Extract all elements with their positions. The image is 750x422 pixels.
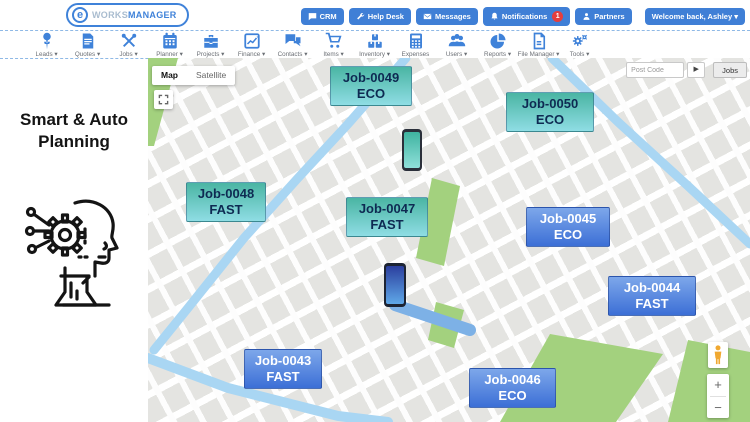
phone-marker-blue[interactable] bbox=[383, 262, 407, 308]
nav-label-users: Users ▾ bbox=[446, 51, 467, 58]
nav-item-jobs[interactable]: Jobs ▾ bbox=[108, 32, 149, 58]
job-marker-0046[interactable]: Job-0046 ECO bbox=[469, 368, 556, 408]
app-window: e WORKSMANAGER CRM Help Desk Messages No… bbox=[0, 0, 750, 422]
calculator-icon bbox=[407, 32, 425, 50]
nav-label-projects: Projects ▾ bbox=[197, 51, 225, 58]
jobs-toggle-button[interactable]: Jobs bbox=[713, 62, 747, 78]
messages-button[interactable]: Messages bbox=[416, 8, 478, 25]
welcome-user-menu[interactable]: Welcome back, Ashley ▾ bbox=[645, 8, 745, 25]
job-marker-0043[interactable]: Job-0043 FAST bbox=[244, 349, 322, 389]
job-tag: FAST bbox=[615, 296, 689, 312]
smart-planning-panel: Smart & Auto Planning bbox=[0, 59, 148, 422]
job-id: Job-0047 bbox=[353, 201, 421, 217]
job-tag: ECO bbox=[476, 388, 549, 404]
logo-e-icon: e bbox=[72, 7, 88, 23]
tools-cross-icon bbox=[120, 32, 138, 50]
users-icon bbox=[448, 32, 466, 50]
brand-first: WORKS bbox=[92, 10, 128, 20]
partners-button[interactable]: Partners bbox=[575, 8, 631, 25]
nav-label-contacts: Contacts ▾ bbox=[278, 51, 308, 58]
notifications-button[interactable]: Notifications 1 bbox=[483, 7, 570, 26]
panel-title-line1: Smart & Auto bbox=[0, 109, 148, 131]
nav-label-tools: Tools ▾ bbox=[570, 51, 590, 58]
map-features-layer bbox=[148, 58, 750, 422]
job-id: Job-0046 bbox=[476, 372, 549, 388]
partners-label: Partners bbox=[594, 12, 624, 21]
calendar-icon bbox=[161, 32, 179, 50]
postcode-input[interactable] bbox=[626, 62, 684, 78]
job-id: Job-0050 bbox=[513, 96, 587, 112]
brand-second: MANAGER bbox=[128, 10, 177, 20]
nav-item-finance[interactable]: Finance ▾ bbox=[231, 32, 272, 58]
file-icon bbox=[530, 32, 548, 50]
nav-label-inventory: Inventory ▾ bbox=[359, 51, 390, 58]
job-marker-0045[interactable]: Job-0045 ECO bbox=[526, 207, 610, 247]
phone-marker-teal[interactable] bbox=[401, 128, 423, 172]
nav-item-items[interactable]: Items ▾ bbox=[313, 32, 354, 58]
crm-button[interactable]: CRM bbox=[301, 8, 344, 25]
nav-item-leads[interactable]: Leads ▾ bbox=[26, 32, 67, 58]
job-id: Job-0045 bbox=[533, 211, 603, 227]
job-id: Job-0043 bbox=[251, 353, 315, 369]
nav-item-quotes[interactable]: Quotes ▾ bbox=[67, 32, 108, 58]
nav-item-file-manager[interactable]: File Manager ▾ bbox=[518, 32, 559, 58]
nav-item-planner[interactable]: Planner ▾ bbox=[149, 32, 190, 58]
messages-label: Messages bbox=[435, 12, 471, 21]
nav-item-reports[interactable]: Reports ▾ bbox=[477, 32, 518, 58]
brand-logo[interactable]: e WORKSMANAGER bbox=[66, 3, 189, 27]
crm-label: CRM bbox=[320, 12, 337, 21]
header-buttons: CRM Help Desk Messages Notifications 1 P… bbox=[301, 7, 745, 26]
map-type-control: Map Satellite bbox=[152, 66, 235, 85]
panel-title-line2: Planning bbox=[0, 131, 148, 153]
chat-icon bbox=[308, 12, 317, 21]
zoom-out-button[interactable]: − bbox=[707, 397, 729, 419]
fullscreen-icon bbox=[158, 94, 169, 105]
nav-label-quotes: Quotes ▾ bbox=[75, 51, 100, 58]
cart-icon bbox=[325, 32, 343, 50]
smart-planning-head-gear-icon bbox=[19, 191, 129, 309]
wrench-icon bbox=[356, 12, 365, 21]
brand-name: WORKSMANAGER bbox=[92, 10, 177, 20]
main-nav-toolbar: Leads ▾ Quotes ▾ Jobs ▾ Planner ▾ Projec… bbox=[0, 30, 750, 59]
map-type-map[interactable]: Map bbox=[152, 66, 187, 85]
job-marker-0049[interactable]: Job-0049 ECO bbox=[330, 66, 412, 106]
job-marker-0048[interactable]: Job-0048 FAST bbox=[186, 182, 266, 222]
pushpin-icon bbox=[38, 32, 56, 50]
boxes-icon bbox=[366, 32, 384, 50]
job-marker-0050[interactable]: Job-0050 ECO bbox=[506, 92, 594, 132]
nav-label-file-manager: File Manager ▾ bbox=[518, 51, 560, 58]
job-id: Job-0044 bbox=[615, 280, 689, 296]
pegman-control[interactable] bbox=[708, 342, 728, 368]
nav-label-reports: Reports ▾ bbox=[484, 51, 511, 58]
map-type-satellite[interactable]: Satellite bbox=[187, 66, 235, 85]
top-header: e WORKSMANAGER CRM Help Desk Messages No… bbox=[0, 0, 750, 30]
envelope-icon bbox=[423, 12, 432, 21]
job-tag: ECO bbox=[337, 86, 405, 102]
nav-item-inventory[interactable]: Inventory ▾ bbox=[354, 32, 395, 58]
pegman-icon bbox=[713, 345, 723, 365]
job-tag: FAST bbox=[193, 202, 259, 218]
notifications-badge: 1 bbox=[552, 11, 563, 22]
help-desk-button[interactable]: Help Desk bbox=[349, 8, 411, 25]
person-icon bbox=[582, 12, 591, 21]
job-marker-0047[interactable]: Job-0047 FAST bbox=[346, 197, 428, 237]
chart-icon bbox=[243, 32, 261, 50]
map-canvas[interactable]: Job-0049 ECO Job-0050 ECO Job-0048 FAST … bbox=[148, 58, 750, 422]
job-id: Job-0049 bbox=[337, 70, 405, 86]
nav-label-leads: Leads ▾ bbox=[35, 51, 57, 58]
panel-title: Smart & Auto Planning bbox=[0, 109, 148, 153]
document-icon bbox=[79, 32, 97, 50]
zoom-in-button[interactable]: + bbox=[707, 374, 729, 396]
help-desk-label: Help Desk bbox=[368, 12, 404, 21]
welcome-label: Welcome back, Ashley ▾ bbox=[652, 12, 738, 21]
nav-label-planner: Planner ▾ bbox=[156, 51, 183, 58]
job-tag: FAST bbox=[251, 369, 315, 385]
nav-item-contacts[interactable]: Contacts ▾ bbox=[272, 32, 313, 58]
job-tag: FAST bbox=[353, 217, 421, 233]
nav-item-projects[interactable]: Projects ▾ bbox=[190, 32, 231, 58]
nav-item-tools[interactable]: Tools ▾ bbox=[559, 32, 600, 58]
job-id: Job-0048 bbox=[193, 186, 259, 202]
search-run-button[interactable]: ▶ bbox=[687, 62, 705, 78]
zoom-control: + − bbox=[707, 374, 729, 418]
nav-label-jobs: Jobs ▾ bbox=[119, 51, 137, 58]
notifications-label: Notifications bbox=[502, 12, 547, 21]
nav-label-expenses: Expenses bbox=[402, 51, 430, 58]
fullscreen-button[interactable] bbox=[154, 90, 173, 109]
nav-label-finance: Finance ▾ bbox=[238, 51, 265, 58]
bell-icon bbox=[490, 12, 499, 21]
postcode-search-row: ▶ Jobs bbox=[626, 62, 747, 78]
job-tag: ECO bbox=[513, 112, 587, 128]
pie-chart-icon bbox=[489, 32, 507, 50]
job-marker-0044[interactable]: Job-0044 FAST bbox=[608, 276, 696, 316]
job-tag: ECO bbox=[533, 227, 603, 243]
nav-item-expenses[interactable]: Expenses bbox=[395, 32, 436, 58]
speech-bubbles-icon bbox=[284, 32, 302, 50]
gears-icon bbox=[571, 32, 589, 50]
nav-item-users[interactable]: Users ▾ bbox=[436, 32, 477, 58]
nav-label-items: Items ▾ bbox=[323, 51, 343, 58]
briefcase-icon bbox=[202, 32, 220, 50]
